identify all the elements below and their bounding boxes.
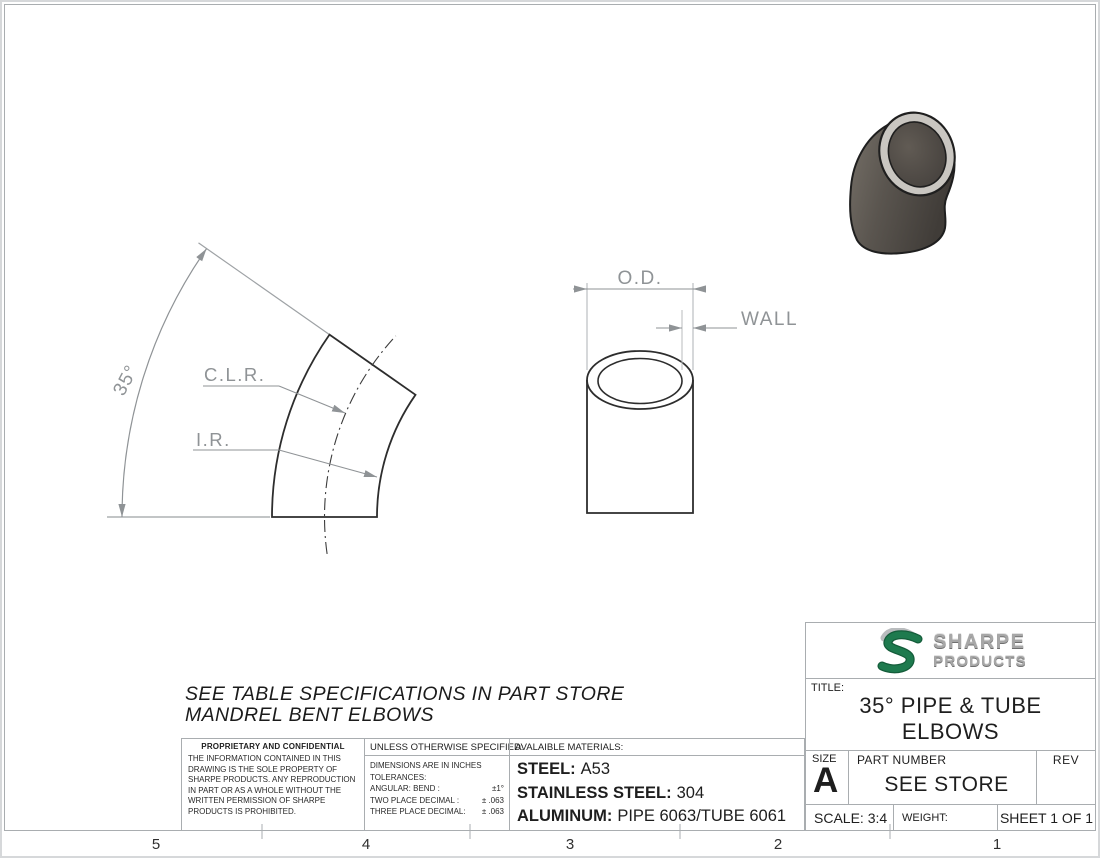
part-number-cell: PART NUMBER SEE STORE xyxy=(849,751,1037,804)
size-value: A xyxy=(813,765,848,797)
rev-cell: REV xyxy=(1037,751,1095,804)
note-line-1: SEE TABLE SPECIFICATIONS IN PART STORE xyxy=(185,684,624,705)
zone-number: 3 xyxy=(566,836,574,853)
drawing-title-line2: ELBOWS xyxy=(806,719,1095,745)
brand-name-line2: PRODUCTS xyxy=(933,654,1027,669)
zone-number: 1 xyxy=(993,836,1001,853)
drawing-title-line1: 35° PIPE & TUBE xyxy=(806,693,1095,719)
tolerance-row-label: ANGULAR: BEND : xyxy=(370,783,440,795)
material-value: PIPE 6063/TUBE 6061 xyxy=(617,807,786,825)
material-value: A53 xyxy=(581,760,610,778)
tolerance-line-1: DIMENSIONS ARE IN INCHES xyxy=(370,760,504,772)
tolerance-row-value: ±1° xyxy=(492,783,504,795)
brand-name-line1: SHARPE xyxy=(933,632,1027,652)
rev-label: REV xyxy=(1037,753,1095,767)
proprietary-heading: PROPRIETARY AND CONFIDENTIAL xyxy=(188,742,358,751)
proprietary-block: PROPRIETARY AND CONFIDENTIAL THE INFORMA… xyxy=(182,739,364,830)
info-table: PROPRIETARY AND CONFIDENTIAL THE INFORMA… xyxy=(181,738,805,831)
brand-logo: SHARPE PRODUCTS xyxy=(806,623,1095,678)
zone-number: 2 xyxy=(774,836,782,853)
title-block: SHARPE PRODUCTS TITLE: 35° PIPE & TUBE E… xyxy=(805,622,1096,831)
tolerance-block: UNLESS OTHERWISE SPECIFIED: DIMENSIONS A… xyxy=(364,739,509,830)
scale-cell: SCALE: 3:4 xyxy=(806,805,894,830)
materials-block: AVALAIBLE MATERIALS: STEEL:A53 STAINLESS… xyxy=(509,739,804,830)
material-row: ALUMINUM:PIPE 6063/TUBE 6061 xyxy=(517,805,797,829)
tolerance-row-value: ± .063 xyxy=(482,795,504,807)
material-label: STEEL: xyxy=(517,760,576,778)
part-number-label: PART NUMBER xyxy=(857,753,1036,767)
material-label: ALUMINUM: xyxy=(517,807,612,825)
tolerance-row-label: THREE PLACE DECIMAL: xyxy=(370,806,466,818)
drawing-note: SEE TABLE SPECIFICATIONS IN PART STORE M… xyxy=(185,684,624,726)
materials-heading: AVALAIBLE MATERIALS: xyxy=(510,739,804,756)
size-cell: SIZE A xyxy=(806,751,849,804)
sheet-cell: SHEET 1 OF 1 xyxy=(998,805,1095,830)
note-line-2: MANDREL BENT ELBOWS xyxy=(185,705,624,726)
material-row: STAINLESS STEEL:304 xyxy=(517,782,797,806)
tolerance-row: TWO PLACE DECIMAL : ± .063 xyxy=(370,795,504,807)
tolerance-heading: UNLESS OTHERWISE SPECIFIED: xyxy=(365,739,509,756)
material-label: STAINLESS STEEL: xyxy=(517,784,672,802)
sharpe-logo-icon xyxy=(874,628,926,674)
zone-number: 4 xyxy=(362,836,370,853)
tolerance-line-2: TOLERANCES: xyxy=(370,772,504,784)
tolerance-row: THREE PLACE DECIMAL: ± .063 xyxy=(370,806,504,818)
material-value: 304 xyxy=(677,784,705,802)
material-row: STEEL:A53 xyxy=(517,758,797,782)
zone-number: 5 xyxy=(152,836,160,853)
weight-cell: WEIGHT: xyxy=(894,805,998,830)
title-cell: TITLE: 35° PIPE & TUBE ELBOWS xyxy=(806,678,1095,749)
part-number-value: SEE STORE xyxy=(857,773,1036,797)
tolerance-row-label: TWO PLACE DECIMAL : xyxy=(370,795,459,807)
tolerance-row-value: ± .063 xyxy=(482,806,504,818)
proprietary-body: THE INFORMATION CONTAINED IN THIS DRAWIN… xyxy=(188,754,358,818)
tolerance-row: ANGULAR: BEND : ±1° xyxy=(370,783,504,795)
